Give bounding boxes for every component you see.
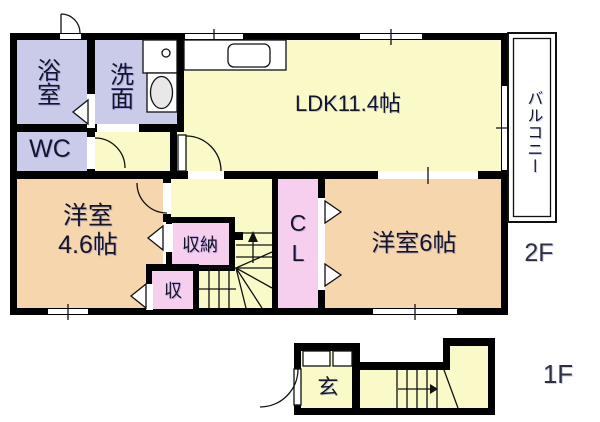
label-western-room-small-1: 洋室 <box>38 202 138 230</box>
label-floor-1f: 1F <box>534 360 582 390</box>
label-ldk: LDK11.4帖 <box>258 90 438 118</box>
label-western-room-small-2: 4.6帖 <box>38 231 138 259</box>
kitchen-sink <box>228 44 270 67</box>
label-storage-small: 収 <box>158 279 188 303</box>
shoe-cabinet <box>333 351 352 366</box>
1f-right-area <box>450 346 488 408</box>
washbasin-bowl <box>151 77 173 109</box>
1f-plan <box>260 338 495 415</box>
wash-counter <box>143 40 177 73</box>
label-wc: WC <box>22 134 78 164</box>
label-storage: 収納 <box>172 233 228 257</box>
label-entrance: 玄 <box>314 375 342 401</box>
label-western-room-large: 洋室6帖 <box>348 230 480 258</box>
label-washroom: 洗面 <box>101 50 137 122</box>
top-door-arc <box>61 14 80 33</box>
label-closet: CL <box>283 198 313 282</box>
shoe-cabinet <box>303 351 330 366</box>
ldk-door-leaf <box>178 135 186 171</box>
label-floor-2f: 2F <box>515 238 563 268</box>
floor-plan-canvas: 浴室 洗面 WC LDK11.4帖 洋室 4.6帖 収納 収 CL 洋室6帖 バ… <box>0 0 600 422</box>
entrance-door-arc <box>260 369 298 407</box>
label-balcony: バルコニー <box>520 48 544 216</box>
corridor-area <box>95 130 177 178</box>
label-bath: 浴室 <box>28 46 64 118</box>
